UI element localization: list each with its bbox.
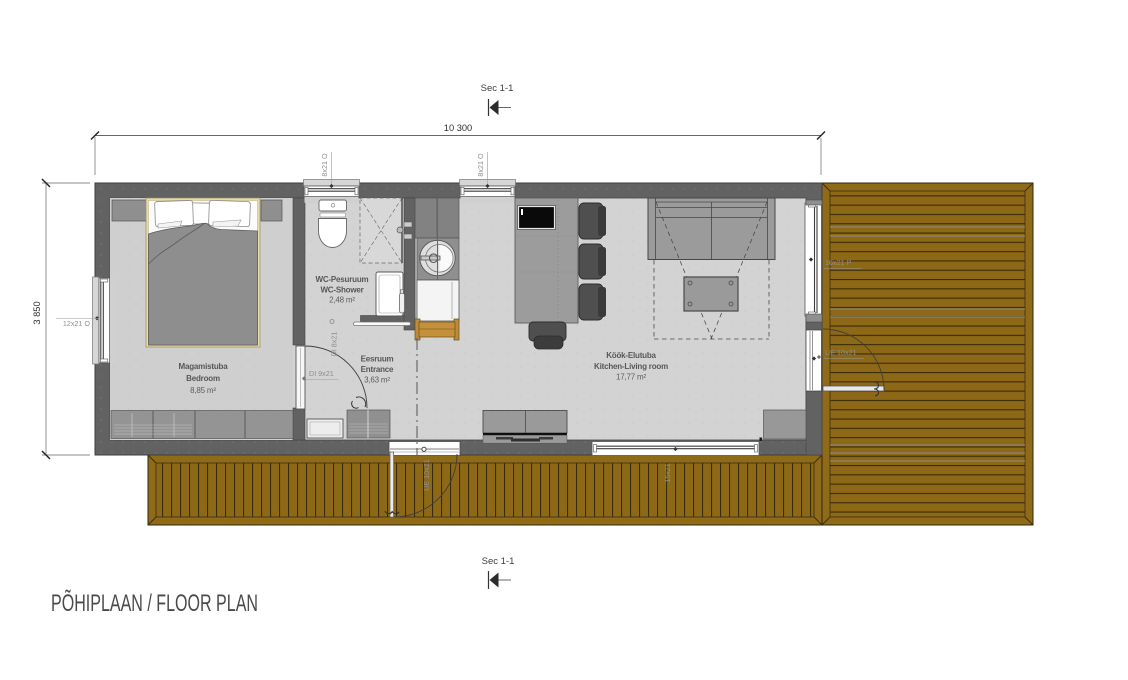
svg-text:WC-Pesuruum: WC-Pesuruum: [316, 275, 369, 284]
svg-text:Eesruum: Eesruum: [361, 355, 394, 364]
svg-text:17,77 m²: 17,77 m²: [616, 373, 647, 382]
svg-text:DI 8x21: DI 8x21: [330, 332, 339, 357]
svg-text:PÕHIPLAAN / FLOOR PLAN: PÕHIPLAAN / FLOOR PLAN: [51, 589, 258, 617]
svg-text:UE 10x21: UE 10x21: [825, 348, 857, 357]
svg-text:3 850: 3 850: [32, 301, 42, 324]
svg-text:15x21: 15x21: [663, 463, 672, 483]
svg-text:Sec 1-1: Sec 1-1: [482, 556, 515, 567]
svg-text:12x21 O: 12x21 O: [63, 319, 91, 328]
svg-text:Kitchen-Living room: Kitchen-Living room: [594, 362, 668, 371]
svg-text:Sec 1-1: Sec 1-1: [481, 83, 514, 94]
svg-text:8x21 O: 8x21 O: [476, 153, 485, 177]
svg-text:2,48 m²: 2,48 m²: [329, 296, 355, 305]
svg-text:10 300: 10 300: [444, 123, 472, 133]
svg-text:Bedroom: Bedroom: [186, 374, 220, 383]
svg-text:3,63 m²: 3,63 m²: [364, 376, 390, 385]
svg-text:16x21 P: 16x21 P: [825, 258, 852, 267]
svg-text:DI 9x21: DI 9x21: [309, 369, 334, 378]
svg-text:8x21 O: 8x21 O: [320, 153, 329, 177]
svg-text:Köök-Elutuba: Köök-Elutuba: [606, 351, 656, 360]
svg-text:UE 10x21: UE 10x21: [422, 459, 431, 491]
svg-text:8,85 m²: 8,85 m²: [190, 386, 216, 395]
svg-text:Entrance: Entrance: [361, 365, 394, 374]
svg-text:WC-Shower: WC-Shower: [320, 286, 363, 295]
svg-text:Magamistuba: Magamistuba: [179, 362, 229, 371]
